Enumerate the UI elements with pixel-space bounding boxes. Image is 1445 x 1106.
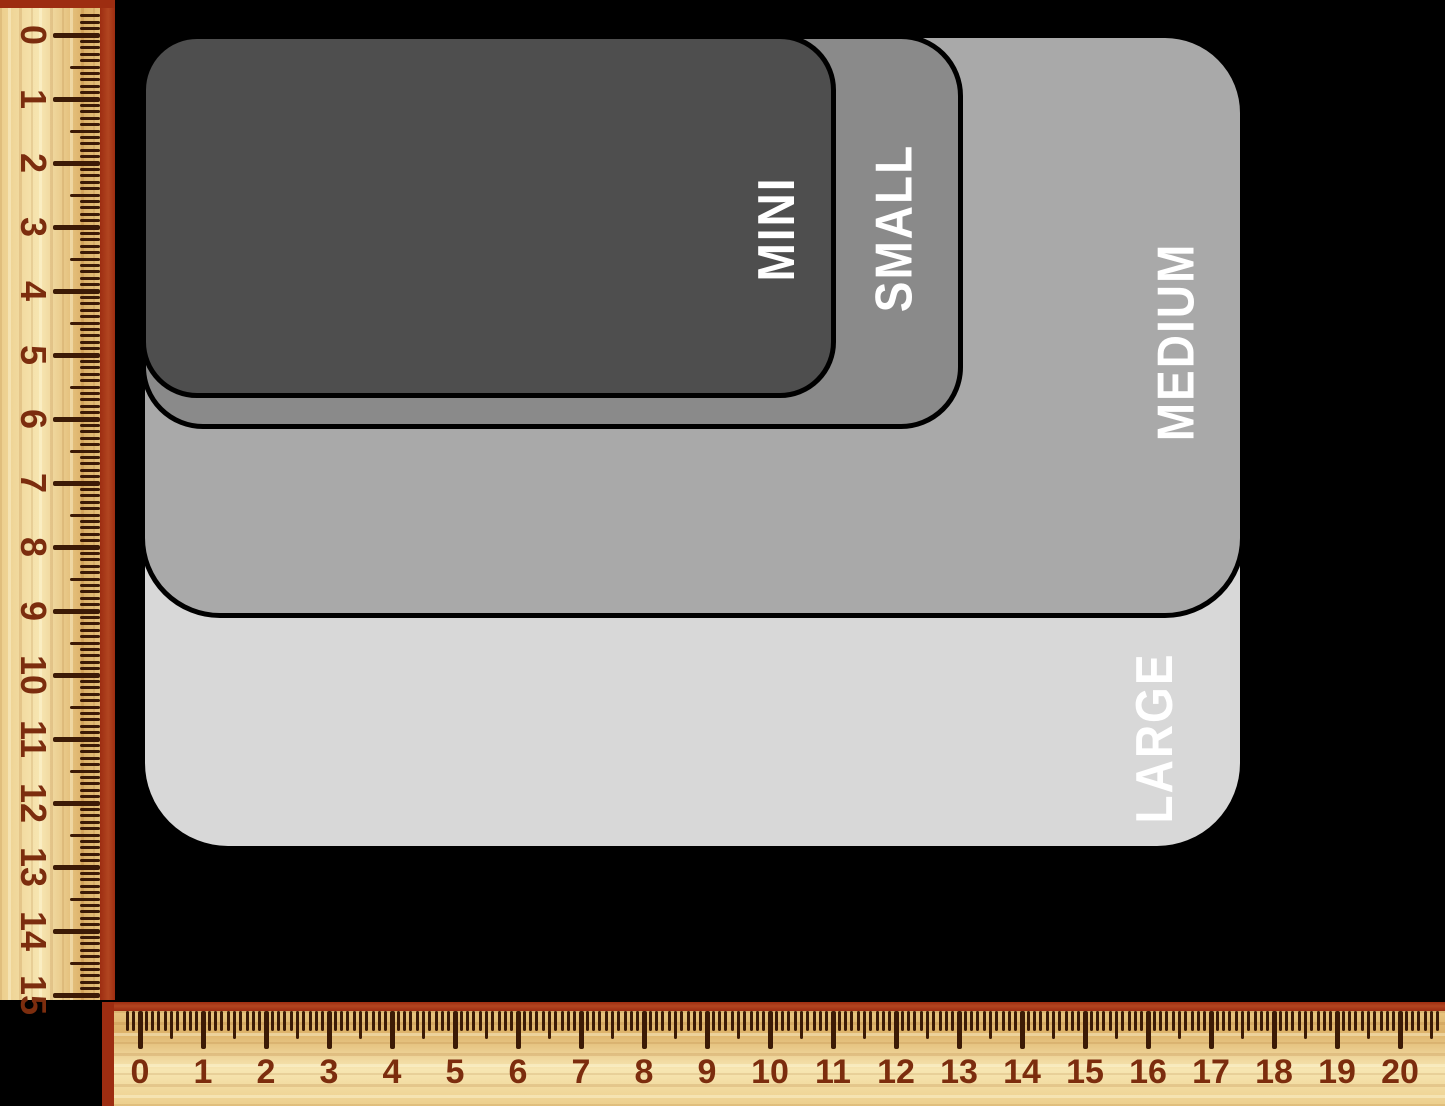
ruler-tick — [649, 1011, 652, 1031]
ruler-tick — [264, 1011, 269, 1049]
ruler-tick — [53, 225, 100, 230]
ruler-number: 14 — [1003, 1055, 1041, 1089]
ruler-tick — [542, 1011, 545, 1031]
ruler-tick — [80, 200, 100, 203]
ruler-tick — [1367, 1011, 1370, 1039]
ruler-tick — [624, 1011, 627, 1031]
ruler-tick — [894, 1011, 899, 1049]
ruler-tick — [876, 1011, 879, 1031]
ruler-tick — [1065, 1011, 1068, 1031]
ruler-tick — [80, 661, 100, 664]
ruler-tick — [80, 616, 100, 619]
ruler-tick — [1392, 1011, 1395, 1031]
ruler-tick — [850, 1011, 853, 1031]
ruler-tick — [80, 437, 100, 440]
ruler-number: 1 — [194, 1055, 213, 1089]
ruler-tick — [80, 795, 100, 798]
ruler-tick — [80, 53, 100, 56]
ruler-tick — [800, 1011, 803, 1039]
ruler-tick — [491, 1011, 494, 1031]
ruler-tick — [80, 533, 100, 536]
ruler-tick — [630, 1011, 633, 1031]
ruler-tick — [80, 955, 100, 958]
ruler-tick — [80, 917, 100, 920]
ruler-tick — [642, 1011, 647, 1049]
ruler-tick — [888, 1011, 891, 1031]
ruler-tick — [321, 1011, 324, 1031]
size-label-medium: MEDIUM — [1146, 243, 1206, 442]
ruler-tick — [422, 1011, 425, 1039]
ruler-tick — [80, 565, 100, 568]
ruler-tick — [1146, 1011, 1151, 1049]
ruler-number: 5 — [446, 1055, 465, 1089]
ruler-tick — [353, 1011, 356, 1031]
ruler-tick — [80, 219, 100, 222]
ruler-tick — [53, 481, 100, 486]
ruler-tick — [80, 155, 100, 158]
ruler-tick — [53, 737, 100, 742]
ruler-tick — [80, 379, 100, 382]
ruler-tick — [283, 1011, 286, 1031]
ruler-tick — [80, 456, 100, 459]
ruler-tick — [397, 1011, 400, 1031]
ruler-tick — [176, 1011, 179, 1031]
ruler-tick — [756, 1011, 759, 1031]
ruler-tick — [53, 97, 100, 102]
ruler-tick — [80, 264, 100, 267]
ruler-tick — [80, 923, 100, 926]
ruler-tick — [80, 520, 100, 523]
ruler-tick — [80, 21, 100, 24]
ruler-tick — [80, 174, 100, 177]
ruler-tick — [655, 1011, 658, 1031]
ruler-tick — [80, 974, 100, 977]
ruler-number: 3 — [15, 217, 51, 237]
ruler-number: 1 — [15, 89, 51, 109]
ruler-tick — [80, 622, 100, 625]
ruler-tick — [340, 1011, 343, 1031]
ruler-tick — [53, 929, 100, 934]
ruler-tick — [466, 1011, 469, 1031]
ruler-number: 9 — [698, 1055, 717, 1089]
ruler-tick — [1027, 1011, 1030, 1031]
ruler-tick — [926, 1011, 929, 1039]
ruler-tick — [80, 584, 100, 587]
ruler-tick — [290, 1011, 293, 1031]
size-label-large: LARGE — [1124, 653, 1184, 824]
ruler-tick — [598, 1011, 601, 1031]
ruler-tick — [1304, 1011, 1307, 1039]
ruler-tick — [80, 142, 100, 145]
ruler-tick — [53, 33, 100, 38]
ruler-tick — [80, 552, 100, 555]
ruler-tick — [80, 942, 100, 945]
ruler-tick — [80, 827, 100, 830]
ruler-tick — [80, 206, 100, 209]
ruler-tick — [1046, 1011, 1049, 1031]
ruler-tick — [1096, 1011, 1099, 1031]
ruler-tick — [80, 168, 100, 171]
ruler-tick — [80, 949, 100, 952]
ruler-tick — [80, 411, 100, 414]
ruler-tick — [617, 1011, 620, 1031]
vertical-ruler: 0123456789101112131415 — [0, 0, 115, 1000]
ruler-tick — [80, 526, 100, 529]
ruler-tick — [1121, 1011, 1124, 1031]
ruler-tick — [70, 386, 100, 389]
ruler-number: 13 — [15, 847, 51, 887]
ruler-tick — [80, 315, 100, 318]
ruler-tick — [359, 1011, 362, 1039]
ruler-number: 6 — [509, 1055, 528, 1089]
ruler-tick — [80, 59, 100, 62]
ruler-tick — [831, 1011, 836, 1049]
ruler-tick — [1298, 1011, 1301, 1031]
ruler-number: 10 — [15, 655, 51, 695]
ruler-tick — [315, 1011, 318, 1031]
ruler-number: 13 — [940, 1055, 978, 1089]
ruler-tick — [1020, 1011, 1025, 1049]
ruler-tick — [472, 1011, 475, 1031]
ruler-tick — [80, 571, 100, 574]
ruler-tick — [80, 475, 100, 478]
ruler-tick — [80, 123, 100, 126]
ruler-tick — [80, 78, 100, 81]
ruler-number: 6 — [15, 409, 51, 429]
ruler-tick — [145, 1011, 148, 1031]
ruler-tick — [819, 1011, 822, 1031]
ruler-tick — [80, 686, 100, 689]
ruler-tick — [1008, 1011, 1011, 1031]
ruler-tick — [70, 898, 100, 901]
ruler-tick — [1077, 1011, 1080, 1031]
ruler-tick — [1216, 1011, 1219, 1031]
ruler-tick — [80, 181, 100, 184]
ruler-number: 2 — [15, 153, 51, 173]
ruler-tick — [80, 981, 100, 984]
ruler-tick — [989, 1011, 992, 1039]
ruler-number: 15 — [1066, 1055, 1104, 1089]
ruler-tick — [1285, 1011, 1288, 1031]
ruler-tick — [80, 309, 100, 312]
ruler-tick — [271, 1011, 274, 1031]
ruler-tick — [327, 1011, 332, 1049]
ruler-tick — [1153, 1011, 1156, 1031]
ruler-tick — [1323, 1011, 1326, 1031]
ruler-tick — [775, 1011, 778, 1031]
ruler-tick — [983, 1011, 986, 1031]
ruler-tick — [80, 821, 100, 824]
ruler-tick — [80, 392, 100, 395]
ruler-tick — [80, 366, 100, 369]
ruler-tick — [1417, 1011, 1420, 1031]
ruler-tick — [239, 1011, 242, 1031]
ruler-tick — [70, 770, 100, 773]
ruler-tick — [1348, 1011, 1351, 1031]
ruler-tick — [441, 1011, 444, 1031]
ruler-tick — [258, 1011, 261, 1031]
ruler-tick — [53, 289, 100, 294]
ruler-tick — [80, 40, 100, 43]
ruler-tick — [80, 283, 100, 286]
ruler-tick — [1140, 1011, 1143, 1031]
ruler-tick — [1241, 1011, 1244, 1039]
ruler-tick — [80, 744, 100, 747]
ruler-tick — [554, 1011, 557, 1031]
ruler-tick — [80, 789, 100, 792]
size-label-mini: MINI — [746, 176, 806, 281]
ruler-tick — [80, 494, 100, 497]
ruler-number: 9 — [15, 601, 51, 621]
ruler-tick — [126, 1011, 129, 1031]
ruler-tick — [1342, 1011, 1345, 1031]
ruler-tick — [80, 987, 100, 990]
ruler-tick — [157, 1011, 160, 1031]
ruler-tick — [277, 1011, 280, 1031]
ruler-tick — [762, 1011, 765, 1031]
ruler-tick — [80, 347, 100, 350]
ruler-tick — [1109, 1011, 1112, 1031]
ruler-tick — [80, 853, 100, 856]
ruler-tick — [151, 1011, 154, 1031]
ruler-tick — [1222, 1011, 1225, 1031]
ruler-tick — [227, 1011, 230, 1031]
ruler-tick — [1052, 1011, 1055, 1039]
ruler-tick — [920, 1011, 923, 1031]
ruler-tick — [80, 46, 100, 49]
ruler-tick — [80, 725, 100, 728]
ruler-tick — [80, 507, 100, 510]
ruler-number: 4 — [15, 281, 51, 301]
ruler-tick — [80, 104, 100, 107]
ruler-tick — [80, 91, 100, 94]
ruler-tick — [80, 859, 100, 862]
ruler-tick — [529, 1011, 532, 1031]
ruler-tick — [80, 238, 100, 241]
ruler-tick — [579, 1011, 584, 1049]
ruler-tick — [718, 1011, 721, 1031]
ruler-tick — [1405, 1011, 1408, 1031]
ruler-tick — [970, 1011, 973, 1031]
ruler-tick — [907, 1011, 910, 1031]
ruler-tick — [504, 1011, 507, 1031]
ruler-tick — [869, 1011, 872, 1031]
ruler-tick — [479, 1011, 482, 1031]
ruler-tick — [1178, 1011, 1181, 1039]
ruler-tick — [403, 1011, 406, 1031]
ruler-tick — [1184, 1011, 1187, 1031]
ruler-tick — [1002, 1011, 1005, 1031]
ruler-tick — [913, 1011, 916, 1031]
ruler-number: 19 — [1318, 1055, 1356, 1089]
ruler-tick — [80, 872, 100, 875]
ruler-tick — [80, 469, 100, 472]
ruler-tick — [668, 1011, 671, 1031]
ruler-tick — [794, 1011, 797, 1031]
ruler-tick — [80, 277, 100, 280]
ruler-tick — [384, 1011, 387, 1031]
ruler-tick — [296, 1011, 299, 1039]
ruler-tick — [365, 1011, 368, 1031]
horizontal-ruler: 01234567891011121314151617181920 — [102, 1002, 1445, 1106]
ruler-tick — [409, 1011, 412, 1031]
ruler-tick — [1317, 1011, 1320, 1031]
ruler-tick — [516, 1011, 521, 1049]
ruler-tick — [636, 1011, 639, 1031]
ruler-tick — [53, 865, 100, 870]
ruler-tick — [138, 1011, 143, 1049]
ruler-tick — [428, 1011, 431, 1031]
ruler-tick — [70, 130, 100, 133]
ruler-tick — [189, 1011, 192, 1031]
ruler-tick — [80, 136, 100, 139]
ruler-tick — [80, 405, 100, 408]
ruler-tick — [1254, 1011, 1257, 1031]
ruler-tick — [743, 1011, 746, 1031]
ruler-tick — [781, 1011, 784, 1031]
ruler-tick — [813, 1011, 816, 1031]
ruler-tick — [1191, 1011, 1194, 1031]
ruler-tick — [80, 763, 100, 766]
ruler-tick — [737, 1011, 740, 1039]
ruler-tick — [995, 1011, 998, 1031]
ruler-tick — [567, 1011, 570, 1031]
ruler-tick — [687, 1011, 690, 1031]
ruler-tick — [80, 488, 100, 491]
ruler-tick — [80, 654, 100, 657]
ruler-number: 10 — [751, 1055, 789, 1089]
ruler-tick — [170, 1011, 173, 1039]
ruler-tick — [80, 360, 100, 363]
ruler-tick — [53, 673, 100, 678]
ruler-tick — [53, 609, 100, 614]
ruler-tick — [498, 1011, 501, 1031]
ruler-tick — [80, 718, 100, 721]
ruler-tick — [1291, 1011, 1294, 1031]
ruler-tick — [80, 373, 100, 376]
ruler-tick — [80, 635, 100, 638]
ruler-tick — [1436, 1011, 1439, 1031]
ruler-tick — [195, 1011, 198, 1031]
ruler-tick — [220, 1011, 223, 1031]
ruler-tick — [1115, 1011, 1118, 1039]
ruler-tick — [1172, 1011, 1175, 1031]
ruler-number: 3 — [320, 1055, 339, 1089]
ruler-tick — [378, 1011, 381, 1031]
ruler-tick — [1159, 1011, 1162, 1031]
ruler-tick — [80, 398, 100, 401]
size-label-small: SMALL — [863, 144, 923, 312]
ruler-tick — [80, 85, 100, 88]
ruler-tick — [70, 258, 100, 261]
ruler-tick — [53, 161, 100, 166]
ruler-tick — [901, 1011, 904, 1031]
ruler-tick — [825, 1011, 828, 1031]
ruler-tick — [80, 539, 100, 542]
ruler-tick — [70, 322, 100, 325]
ruler-tick — [70, 450, 100, 453]
ruler-tick — [1272, 1011, 1277, 1049]
ruler-number: 16 — [1129, 1055, 1167, 1089]
ruler-tick — [80, 443, 100, 446]
ruler-tick — [1083, 1011, 1088, 1049]
ruler-tick — [1090, 1011, 1093, 1031]
ruler-tick — [334, 1011, 337, 1031]
ruler-tick — [183, 1011, 186, 1031]
ruler-tick — [70, 194, 100, 197]
ruler-tick — [80, 149, 100, 152]
ruler-tick — [80, 603, 100, 606]
ruler-tick — [53, 801, 100, 806]
ruler-tick — [1102, 1011, 1105, 1031]
ruler-tick — [416, 1011, 419, 1031]
ruler-tick — [80, 648, 100, 651]
ruler-number: 0 — [131, 1055, 150, 1089]
ruler-tick — [939, 1011, 942, 1031]
ruler-tick — [80, 117, 100, 120]
ruler-tick — [844, 1011, 847, 1031]
ruler-tick — [1310, 1011, 1313, 1031]
ruler-tick — [80, 936, 100, 939]
ruler-tick — [705, 1011, 710, 1049]
ruler-number: 11 — [15, 720, 51, 758]
ruler-tick — [80, 597, 100, 600]
ruler-tick — [80, 251, 100, 254]
ruler-number: 0 — [15, 25, 51, 45]
ruler-tick — [80, 232, 100, 235]
ruler-tick — [699, 1011, 702, 1031]
ruler-tick — [1209, 1011, 1214, 1049]
ruler-tick — [80, 213, 100, 216]
ruler-tick — [80, 72, 100, 75]
ruler-tick — [750, 1011, 753, 1031]
ruler-tick — [447, 1011, 450, 1031]
ruler-tick — [460, 1011, 463, 1031]
ruler-tick — [1134, 1011, 1137, 1031]
ruler-tick — [80, 558, 100, 561]
ruler-tick — [605, 1011, 608, 1031]
ruler-tick — [80, 590, 100, 593]
ruler-tick — [70, 66, 100, 69]
ruler-tick — [53, 545, 100, 550]
ruler-tick — [214, 1011, 217, 1031]
ruler-tick — [1380, 1011, 1383, 1031]
ruler-tick — [80, 910, 100, 913]
ruler-tick — [80, 712, 100, 715]
ruler-tick — [951, 1011, 954, 1031]
ruler-tick — [485, 1011, 488, 1039]
ruler-tick — [80, 782, 100, 785]
ruler-tick — [592, 1011, 595, 1031]
ruler-tick — [1197, 1011, 1200, 1031]
ruler-tick — [1361, 1011, 1364, 1031]
ruler-tick — [80, 693, 100, 696]
ruler-tick — [1235, 1011, 1238, 1031]
ruler-tick — [680, 1011, 683, 1031]
ruler-tick — [302, 1011, 305, 1031]
ruler-tick — [80, 27, 100, 30]
ruler-tick — [80, 891, 100, 894]
ruler-tick — [1411, 1011, 1414, 1031]
ruler-tick — [838, 1011, 841, 1031]
ruler-tick — [80, 302, 100, 305]
ruler-number: 8 — [15, 537, 51, 557]
ruler-tick — [712, 1011, 715, 1031]
ruler-tick — [80, 840, 100, 843]
ruler-tick — [252, 1011, 255, 1031]
ruler-tick — [80, 462, 100, 465]
ruler-tick — [80, 885, 100, 888]
